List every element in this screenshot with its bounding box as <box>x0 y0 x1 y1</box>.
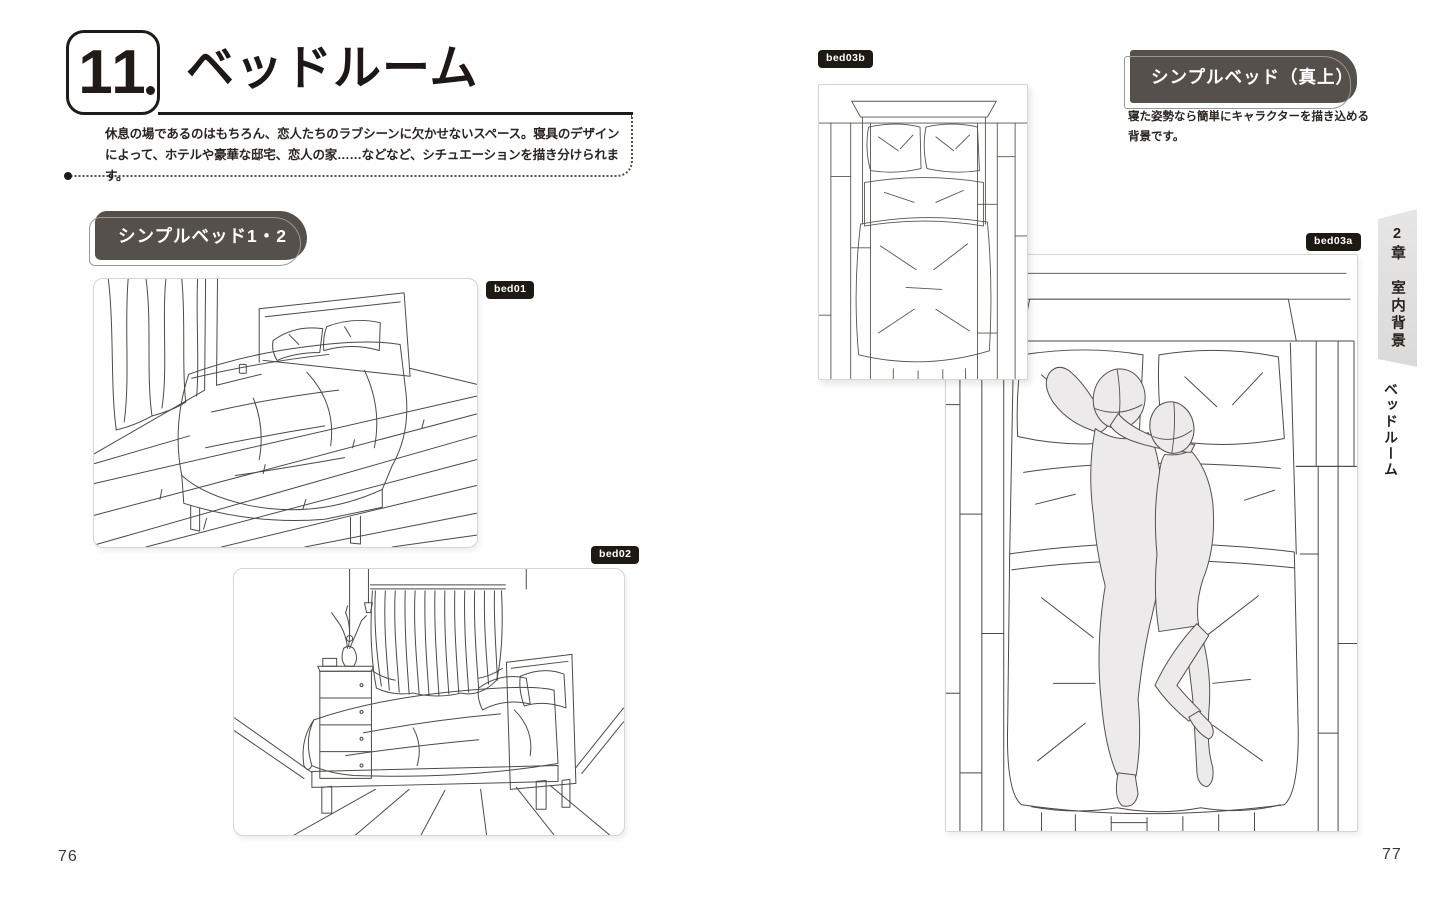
figure-panel-bed03b <box>818 84 1028 380</box>
section-side-label: ベッドルーム <box>1381 382 1401 478</box>
intro-dot <box>64 172 72 180</box>
book-page-spread: 11 ベッドルーム 休息の場であるのはもちろん、恋人たちのラブシーンに欠かせない… <box>0 0 1445 898</box>
figure-badge-bed03b: bed03b <box>818 50 873 68</box>
bed01-line-drawing <box>94 279 477 547</box>
chapter-number: 11 <box>78 42 148 104</box>
figure-panel-bed02 <box>233 568 625 836</box>
page-title: ベッドルーム <box>186 40 479 98</box>
caption-line-1: 寝た姿勢なら簡単にキャラクターを描き込める <box>1128 107 1376 127</box>
page-number-right: 77 <box>1382 846 1402 864</box>
page-number-left: 76 <box>58 848 78 866</box>
chapter-number-box: 11 <box>66 30 160 115</box>
chapter-side-tab: 2章 室内背景 <box>1378 209 1417 367</box>
mannequin-figures <box>1046 366 1213 806</box>
intro-text-box: 休息の場であるのはもちろん、恋人たちのラブシーンに欠かせないスペース。寝具のデザ… <box>70 115 633 177</box>
bed03b-line-drawing <box>819 85 1027 379</box>
chapter-tab-label: 2章 室内背景 <box>1387 226 1408 350</box>
intro-line-1: 休息の場であるのはもちろん、恋人たちのラブシーンに欠かせないスペース。寝具のデザ… <box>105 124 631 145</box>
section-label-simple-bed-overhead: シンプルベッド（真上） <box>1130 50 1357 103</box>
section-label-simple-bed-1-2: シンプルベッド1・2 <box>95 211 307 260</box>
figure-badge-bed03a: bed03a <box>1306 233 1361 251</box>
figure-panel-bed01 <box>93 278 478 548</box>
caption-line-2: 背景です。 <box>1128 127 1376 147</box>
intro-line-2: によって、ホテルや豪華な邸宅、恋人の家……などなど、シチュエーションを描き分けら… <box>105 145 631 187</box>
figure-badge-bed01: bed01 <box>486 281 534 299</box>
bed02-line-drawing <box>234 569 624 835</box>
section-caption: 寝た姿勢なら簡単にキャラクターを描き込める 背景です。 <box>1128 107 1376 147</box>
section-label-text: シンプルベッド（真上） <box>1151 64 1354 89</box>
chapter-dot <box>146 86 155 95</box>
section-label-text: シンプルベッド1・2 <box>118 223 287 248</box>
figure-badge-bed02: bed02 <box>591 546 639 564</box>
